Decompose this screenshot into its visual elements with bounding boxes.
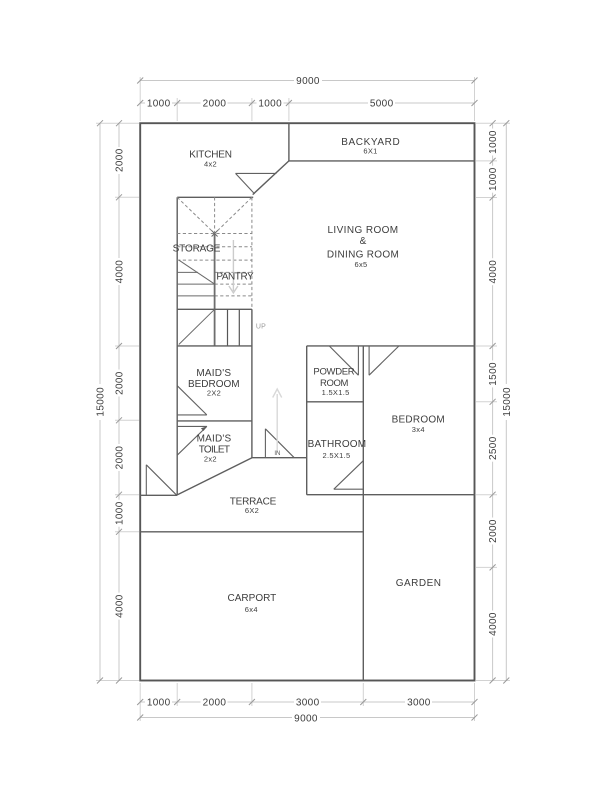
svg-text:4000: 4000: [115, 260, 126, 284]
svg-text:MAID'S: MAID'S: [196, 368, 231, 379]
svg-text:3x4: 3x4: [412, 425, 425, 434]
svg-text:UP: UP: [256, 324, 266, 331]
svg-text:2X2: 2X2: [207, 389, 221, 398]
svg-text:2.5X1.5: 2.5X1.5: [323, 451, 351, 460]
svg-text:15000: 15000: [502, 387, 513, 417]
svg-text:LIVING ROOM: LIVING ROOM: [327, 225, 398, 236]
svg-text:PANTRY: PANTRY: [216, 272, 254, 283]
svg-text:1000: 1000: [147, 99, 171, 110]
svg-text:POWDER: POWDER: [313, 367, 354, 378]
svg-text:1000: 1000: [147, 698, 171, 709]
svg-text:1000: 1000: [258, 99, 282, 110]
svg-text:2000: 2000: [203, 99, 227, 110]
svg-text:2000: 2000: [115, 148, 126, 172]
svg-text:CARPORT: CARPORT: [228, 593, 277, 604]
svg-text:1500: 1500: [488, 362, 499, 386]
svg-text:4000: 4000: [488, 260, 499, 284]
svg-text:9000: 9000: [294, 714, 318, 725]
svg-text:2000: 2000: [203, 698, 227, 709]
svg-text:1000: 1000: [115, 501, 126, 525]
svg-text:1000: 1000: [488, 130, 499, 154]
svg-text:6X2: 6X2: [245, 506, 259, 515]
svg-text:4000: 4000: [115, 594, 126, 618]
svg-text:6X1: 6X1: [363, 147, 377, 156]
svg-text:2x2: 2x2: [204, 455, 217, 464]
svg-text:BATHROOM: BATHROOM: [308, 439, 367, 450]
svg-text:2000: 2000: [115, 371, 126, 395]
svg-text:BEDROOM: BEDROOM: [392, 415, 445, 426]
svg-text:5000: 5000: [370, 99, 394, 110]
svg-text:6x4: 6x4: [245, 605, 258, 614]
svg-text:2500: 2500: [488, 436, 499, 460]
svg-text:3000: 3000: [296, 698, 320, 709]
svg-text:3000: 3000: [407, 698, 431, 709]
svg-text:9000: 9000: [296, 76, 320, 87]
svg-text:STORAGE: STORAGE: [173, 244, 221, 255]
svg-text:MAID'S: MAID'S: [197, 434, 232, 445]
svg-text:1000: 1000: [488, 167, 499, 191]
svg-text:2000: 2000: [488, 519, 499, 543]
svg-text:&: &: [360, 236, 367, 247]
svg-text:4x2: 4x2: [204, 160, 217, 169]
svg-text:IN: IN: [274, 451, 280, 457]
svg-text:GARDEN: GARDEN: [396, 578, 442, 589]
svg-text:1.5X1.5: 1.5X1.5: [322, 388, 350, 397]
svg-text:15000: 15000: [96, 387, 107, 417]
svg-text:6x5: 6x5: [355, 260, 368, 269]
svg-text:2000: 2000: [115, 446, 126, 470]
svg-text:4000: 4000: [488, 612, 499, 636]
